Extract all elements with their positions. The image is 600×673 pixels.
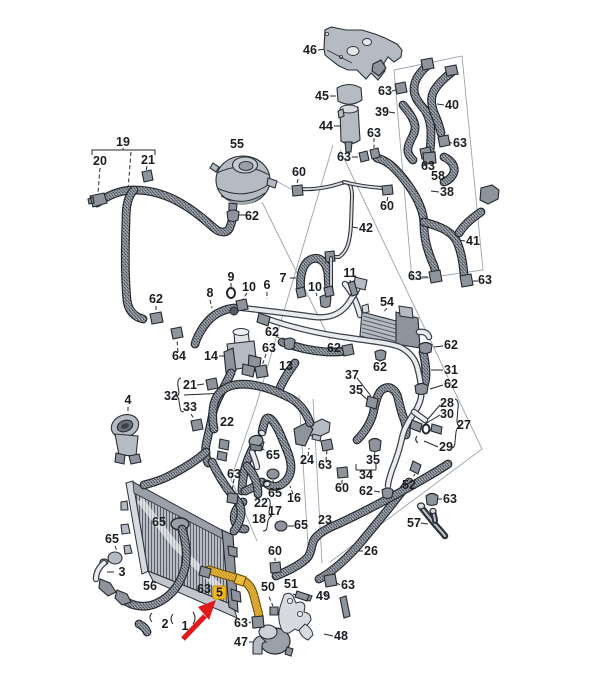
svg-text:60: 60 [268,544,282,558]
svg-text:58: 58 [431,169,445,183]
svg-text:65: 65 [152,515,166,529]
svg-text:23: 23 [318,513,332,527]
svg-text:63: 63 [337,150,351,164]
svg-text:47: 47 [234,635,248,649]
svg-text:22: 22 [254,496,268,510]
svg-text:60: 60 [380,199,394,213]
svg-text:50: 50 [261,580,275,594]
svg-text:32: 32 [164,389,178,403]
svg-text:10: 10 [308,280,322,294]
svg-text:52: 52 [402,478,416,492]
svg-text:54: 54 [380,295,394,309]
svg-text:60: 60 [335,481,349,495]
svg-text:62: 62 [359,484,373,498]
svg-text:62: 62 [245,209,259,223]
svg-text:62: 62 [149,292,163,306]
svg-text:60: 60 [292,165,306,179]
svg-text:63: 63 [341,578,355,592]
svg-text:62: 62 [373,360,387,374]
svg-text:33: 33 [183,400,197,414]
svg-text:45: 45 [315,89,329,103]
svg-text:63: 63 [408,269,422,283]
svg-text:46: 46 [303,43,317,57]
svg-text:5: 5 [216,586,223,600]
svg-text:35: 35 [366,453,380,467]
svg-text:55: 55 [230,137,244,151]
svg-text:20: 20 [93,154,107,168]
svg-text:63: 63 [478,273,492,287]
svg-text:21: 21 [141,153,155,167]
svg-text:22: 22 [220,415,234,429]
svg-text:29: 29 [439,440,453,454]
svg-text:44: 44 [319,119,333,133]
svg-text:63: 63 [367,126,381,140]
svg-text:62: 62 [265,325,279,339]
svg-text:42: 42 [359,221,373,235]
svg-text:26: 26 [364,544,378,558]
svg-text:56: 56 [143,579,157,593]
svg-text:63: 63 [197,582,211,596]
svg-text:34: 34 [359,468,373,482]
svg-text:10: 10 [242,280,256,294]
svg-text:13: 13 [279,359,293,373]
svg-text:62: 62 [444,338,458,352]
svg-text:62: 62 [327,341,341,355]
svg-text:39: 39 [375,105,389,119]
svg-text:3: 3 [119,565,126,579]
svg-text:51: 51 [284,577,298,591]
svg-text:27: 27 [457,418,471,432]
svg-text:49: 49 [316,589,330,603]
svg-text:14: 14 [204,349,218,363]
svg-text:48: 48 [334,629,348,643]
svg-text:24: 24 [300,453,314,467]
svg-text:57: 57 [407,516,421,530]
svg-text:65: 65 [268,486,282,500]
svg-text:6: 6 [264,278,271,292]
svg-text:8: 8 [207,286,214,300]
svg-text:9: 9 [228,270,235,284]
svg-text:65: 65 [266,448,280,462]
svg-text:62: 62 [444,377,458,391]
svg-text:4: 4 [125,393,132,407]
svg-text:63: 63 [453,136,467,150]
svg-text:64: 64 [172,349,186,363]
svg-text:7: 7 [280,271,287,285]
svg-text:40: 40 [445,98,459,112]
svg-text:63: 63 [227,467,241,481]
svg-text:18: 18 [252,512,266,526]
svg-text:11: 11 [343,266,356,280]
svg-text:38: 38 [440,185,454,199]
svg-text:63: 63 [378,84,392,98]
svg-text:63: 63 [234,616,248,630]
svg-text:63: 63 [318,458,332,472]
svg-text:21: 21 [183,378,197,392]
svg-text:30: 30 [440,407,454,421]
svg-text:63: 63 [262,341,276,355]
svg-text:2: 2 [162,617,169,631]
svg-text:65: 65 [105,532,119,546]
svg-text:16: 16 [287,491,301,505]
svg-text:17: 17 [268,504,282,518]
svg-text:35: 35 [349,383,363,397]
svg-text:63: 63 [443,492,457,506]
svg-text:37: 37 [345,368,359,382]
svg-text:31: 31 [444,363,458,377]
svg-text:65: 65 [294,518,308,532]
svg-text:19: 19 [116,135,130,149]
svg-text:41: 41 [466,234,480,248]
